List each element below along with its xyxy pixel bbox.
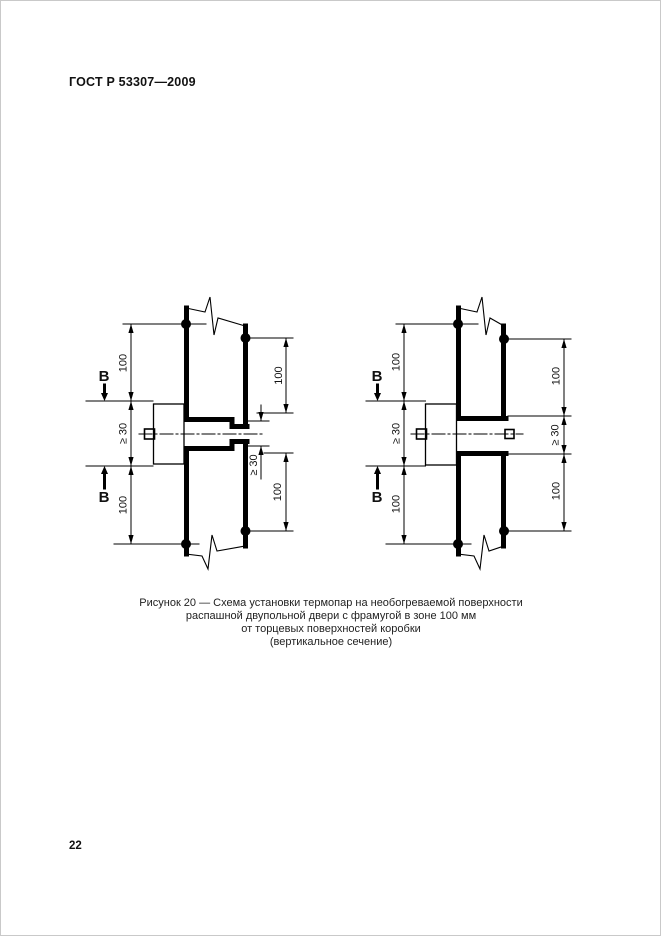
dim-label-100: 100 [118, 496, 130, 514]
lower-break-line [458, 535, 504, 569]
section-arrow-head [101, 466, 108, 474]
caption-line: распашной двупольной двери с фрамугой в … [81, 610, 581, 623]
dim-arrow [561, 522, 566, 531]
lower-break-line [186, 535, 245, 569]
dim-arrow [283, 404, 288, 413]
dim-arrow [401, 324, 406, 333]
left-diagram: 100 ≥ 30 100 100 ≥ 30 100 B B [86, 297, 293, 569]
dim-label-min30: ≥ 30 [550, 424, 562, 445]
section-arrow-head [101, 393, 108, 401]
dim-arrow [258, 446, 263, 455]
dim-arrow [128, 324, 133, 333]
figure-20-drawing: 100 ≥ 30 100 100 ≥ 30 100 B B [1, 1, 661, 936]
dim-arrow [128, 457, 133, 466]
dim-arrow [401, 466, 406, 475]
dim-label-min30: ≥ 30 [391, 423, 403, 444]
section-arrow-head [374, 466, 381, 474]
dim-arrow [561, 416, 566, 425]
dim-arrow [401, 535, 406, 544]
dim-arrow [401, 457, 406, 466]
section-arrow-head [374, 393, 381, 401]
dim-arrow [283, 522, 288, 531]
section-markers [101, 385, 108, 488]
section-label: B [99, 489, 110, 506]
thermocouple-dot [241, 333, 251, 343]
lower-leaf-left-edge-and-rail [459, 454, 507, 555]
upper-break-line [458, 297, 504, 335]
dim-arrow [561, 407, 566, 416]
dim-arrow [283, 453, 288, 462]
break-lines [186, 297, 245, 569]
lower-leaf-left-edge-and-rebate [187, 442, 248, 555]
dim-label-min30: ≥ 30 [248, 454, 260, 475]
dim-arrow [128, 535, 133, 544]
dim-arrow [258, 412, 263, 421]
upper-leaf-left-edge-and-rebate [187, 308, 248, 427]
dim-arrow [128, 401, 133, 410]
dim-label-min30: ≥ 30 [118, 423, 130, 444]
dim-label-100: 100 [272, 483, 284, 501]
dim-arrow [561, 445, 566, 454]
dim-label-100: 100 [551, 482, 563, 500]
section-label: B [372, 368, 383, 385]
thermocouple-dot [499, 526, 509, 536]
section-markers [374, 385, 381, 488]
thermocouple-dot [241, 526, 251, 536]
thermocouple-dot [499, 334, 509, 344]
dim-arrow [561, 339, 566, 348]
dim-arrow [401, 392, 406, 401]
dim-arrow [561, 454, 566, 463]
dim-label-100: 100 [118, 354, 130, 372]
dim-arrow [401, 401, 406, 410]
caption-line: (вертикальное сечение) [81, 636, 581, 649]
upper-break-line [186, 297, 245, 335]
caption-line: от торцевых поверхностей коробки [81, 623, 581, 636]
section-label: B [372, 489, 383, 506]
caption-line: Рисунок 20 — Схема установки термопар на… [81, 597, 581, 610]
section-label: B [99, 368, 110, 385]
break-lines [458, 297, 504, 569]
page-number: 22 [69, 840, 82, 852]
upper-leaf-left-edge-and-rail [459, 308, 507, 419]
dim-label-100: 100 [551, 367, 563, 385]
figure-caption: Рисунок 20 — Схема установки термопар на… [81, 597, 581, 649]
dim-label-100: 100 [273, 366, 285, 384]
document-page: ГОСТ Р 53307—2009 [0, 0, 661, 936]
dim-arrow [283, 338, 288, 347]
dim-label-100: 100 [391, 495, 403, 513]
door-leaf-profile [187, 308, 248, 554]
right-diagram: 100 ≥ 30 100 100 ≥ 30 100 B B [366, 297, 571, 569]
dim-arrow [128, 392, 133, 401]
door-leaf-profile [459, 308, 507, 554]
dim-arrow [128, 466, 133, 475]
dim-label-100: 100 [391, 353, 403, 371]
